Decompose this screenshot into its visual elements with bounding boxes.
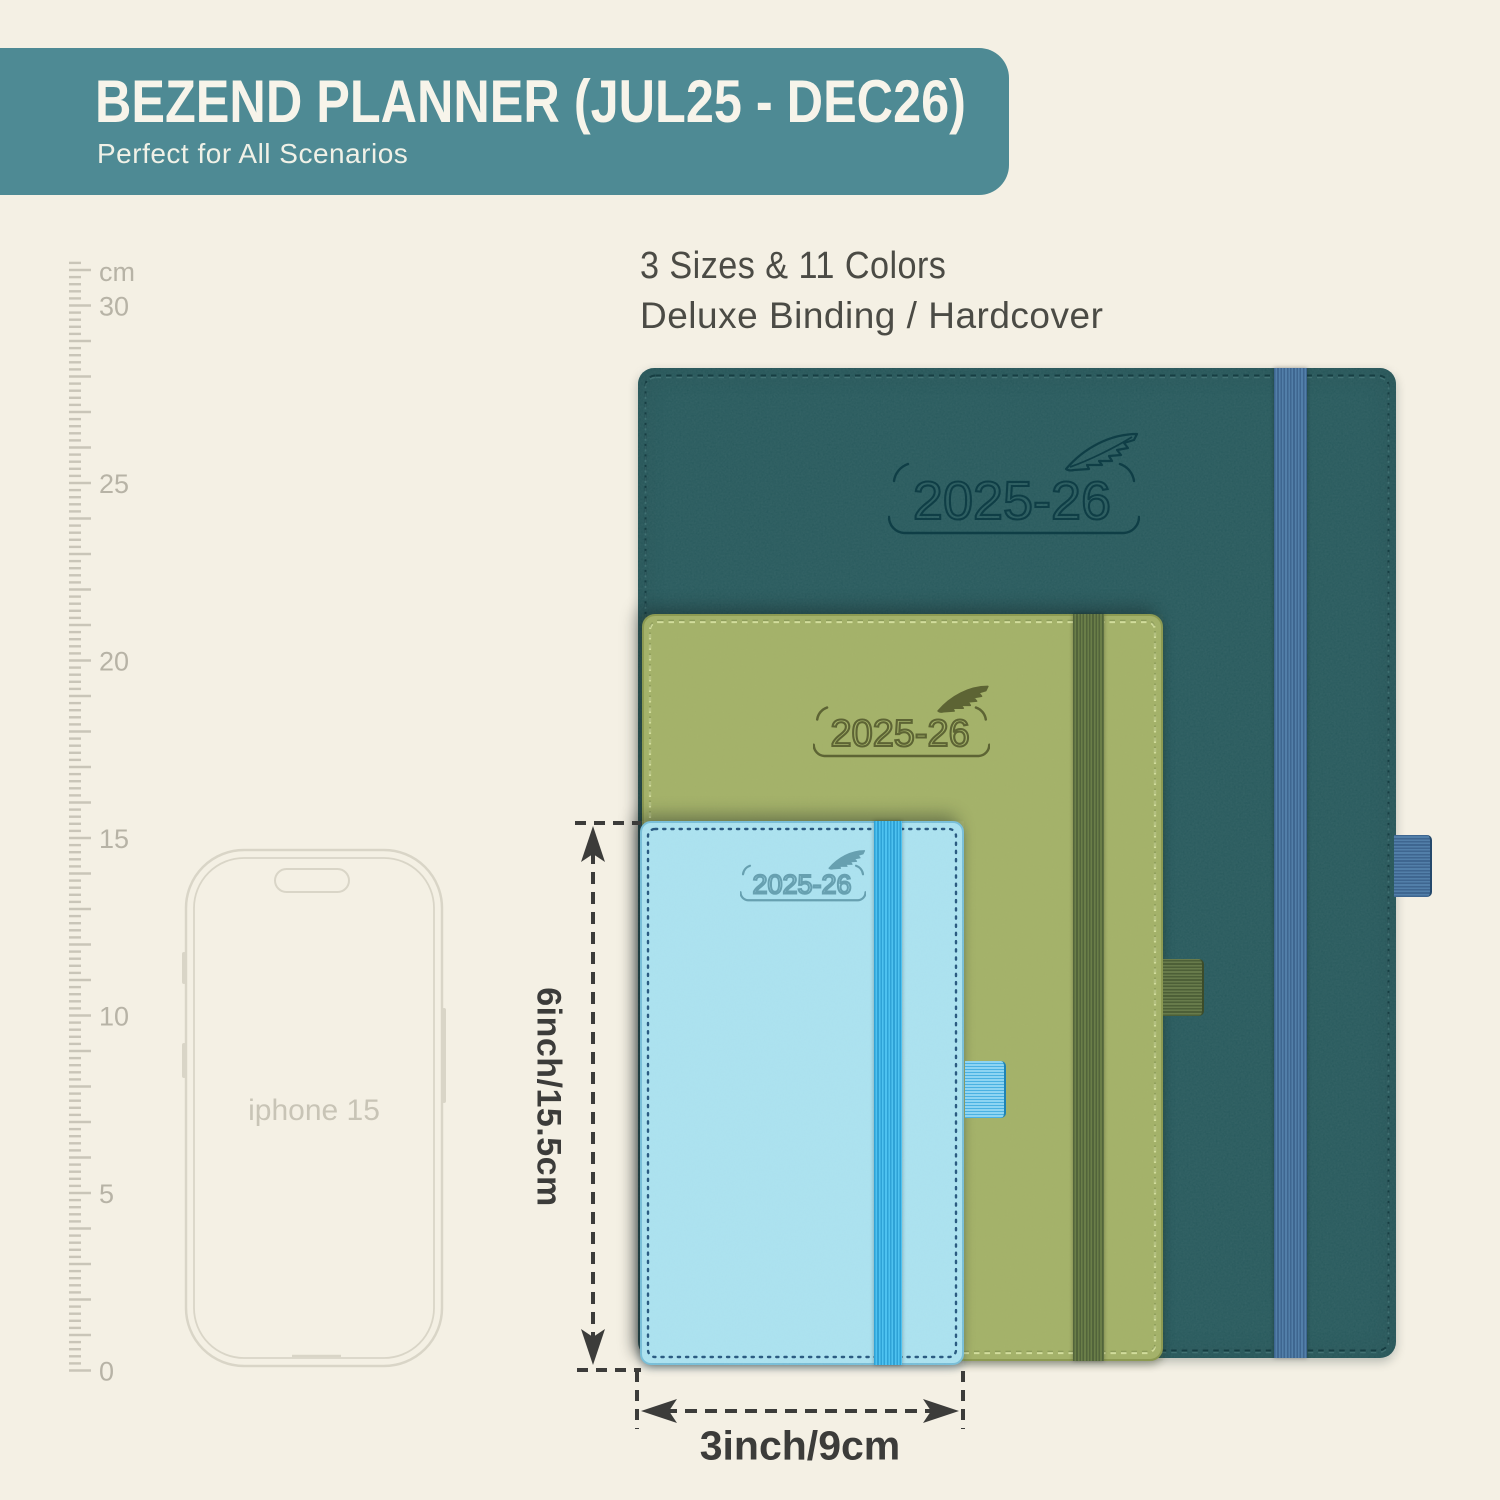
svg-text:15: 15 [99, 824, 129, 854]
svg-text:iphone 15: iphone 15 [248, 1094, 380, 1127]
svg-text:2025-26: 2025-26 [752, 869, 851, 899]
svg-text:20: 20 [99, 647, 129, 677]
svg-text:0: 0 [99, 1357, 114, 1387]
svg-text:25: 25 [99, 469, 129, 499]
svg-text:2025-26: 2025-26 [913, 471, 1111, 531]
svg-text:cm: cm [99, 257, 135, 287]
svg-text:30: 30 [99, 292, 129, 322]
svg-text:2025-26: 2025-26 [831, 713, 970, 755]
svg-text:10: 10 [99, 1002, 129, 1032]
svg-text:5: 5 [99, 1179, 114, 1209]
